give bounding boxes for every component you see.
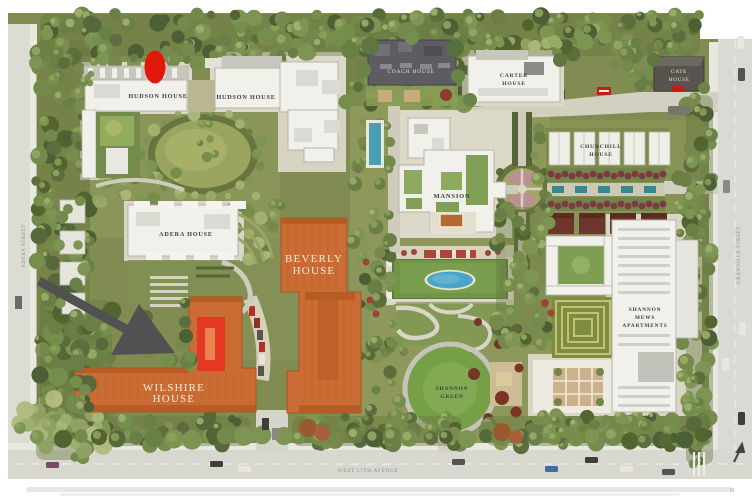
svg-text:GRANVILLE STREET: GRANVILLE STREET [736,226,742,284]
svg-text:GREEN: GREEN [440,394,463,400]
svg-text:HUDSON HOUSE: HUDSON HOUSE [216,94,275,101]
svg-text:MEWS: MEWS [635,315,655,321]
svg-text:WEST 57TH AVENUE: WEST 57TH AVENUE [338,468,399,474]
svg-text:ADERA STREET: ADERA STREET [21,224,27,268]
svg-text:COACH HOUSE: COACH HOUSE [387,69,434,75]
svg-text:SHANNON: SHANNON [629,307,662,313]
svg-text:ADERA HOUSE: ADERA HOUSE [159,231,213,238]
svg-text:HOUSE: HOUSE [502,81,526,87]
svg-text:BEVERLY: BEVERLY [285,253,343,265]
svg-text:CHURCHILL: CHURCHILL [580,144,622,150]
svg-text:CARTER: CARTER [500,73,528,79]
svg-text:GATE: GATE [671,69,687,75]
svg-text:APARTMENTS: APARTMENTS [622,323,667,329]
svg-text:HOUSE: HOUSE [589,152,613,158]
svg-text:HUDSON HOUSE: HUDSON HOUSE [128,93,187,100]
svg-text:HOUSE: HOUSE [153,393,196,405]
svg-text:HOUSE: HOUSE [293,265,336,277]
svg-text:HOUSE: HOUSE [669,77,690,83]
svg-text:MANSION: MANSION [433,193,470,200]
svg-text:SHANNON: SHANNON [436,386,469,392]
